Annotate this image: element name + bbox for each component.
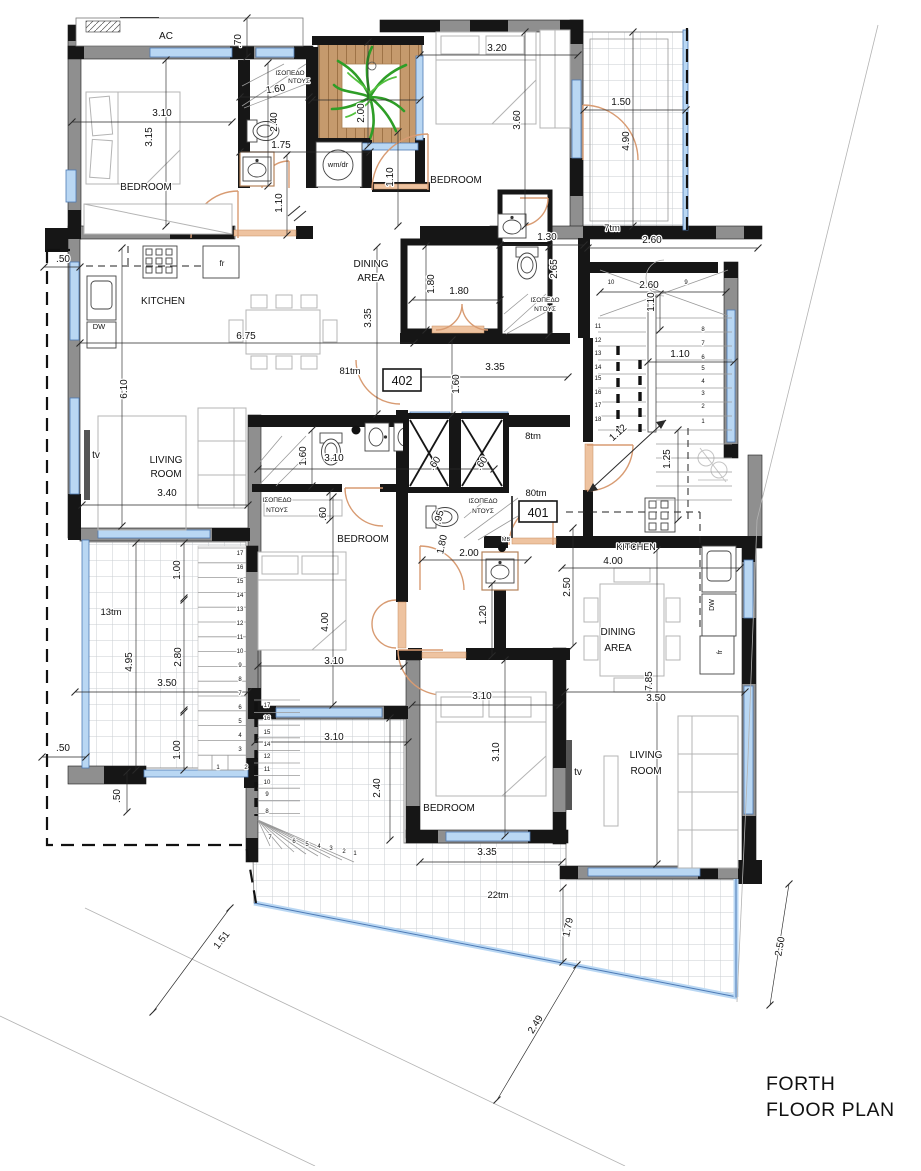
dim: 2.49 bbox=[526, 1013, 546, 1036]
room-label-living-401-2: ROOM bbox=[630, 766, 661, 777]
stair-step-num: 12 bbox=[264, 754, 271, 760]
tv-402-unit bbox=[84, 430, 90, 500]
unit-402-number: 402 bbox=[392, 374, 413, 388]
dim: 3.50 bbox=[646, 693, 666, 704]
dim: .60 bbox=[318, 507, 329, 521]
room-label-bedroom-nw: BEDROOM bbox=[120, 182, 172, 193]
dim: 3.10 bbox=[324, 453, 344, 464]
area-label-7tm: 7tm bbox=[604, 223, 620, 234]
dim: 1.10 bbox=[646, 292, 657, 312]
unit-401-number: 401 bbox=[528, 506, 549, 520]
dim: 1.20 bbox=[478, 605, 489, 625]
dim: 3.40 bbox=[157, 488, 177, 499]
page-title-line1: FORTH bbox=[766, 1073, 835, 1095]
stair-step-num: 14 bbox=[264, 742, 271, 748]
sink bbox=[365, 423, 389, 451]
shower-label-nw-1: ΙΣΟΠΕΔΟ bbox=[275, 70, 304, 77]
dim: 1.10 bbox=[274, 193, 285, 213]
stair-step-num: 9 bbox=[684, 280, 688, 286]
stair-step-num: 3 bbox=[701, 391, 705, 397]
dim: 7.85 bbox=[644, 671, 655, 691]
dim: 1.50 bbox=[611, 97, 631, 108]
shower-label-nw-2: ΝΤΟΥΣ bbox=[288, 78, 310, 85]
dim: 1.30 bbox=[537, 232, 557, 243]
dim: 3.60 bbox=[512, 110, 523, 130]
dim: 3.10 bbox=[324, 732, 344, 743]
area-label-22tm: 22tm bbox=[487, 890, 508, 901]
wardrobe-nw bbox=[84, 204, 232, 234]
area-label-80tm: 80tm bbox=[525, 488, 546, 499]
room-label-living-401-1: LIVING bbox=[630, 750, 663, 761]
stair-step-num: 17 bbox=[595, 403, 602, 409]
sink bbox=[486, 559, 514, 583]
room-label-dining-402-2: AREA bbox=[357, 273, 385, 284]
dim: 2.65 bbox=[549, 259, 560, 279]
dim: 1.00 bbox=[172, 740, 183, 760]
stair-step-num: 11 bbox=[264, 767, 271, 773]
stove-402 bbox=[143, 246, 177, 278]
dim: 1.80 bbox=[426, 274, 437, 294]
shower-label-401-1: ΙΣΟΠΕΔΟ bbox=[468, 498, 497, 505]
title-block: FORTH FLOOR PLAN bbox=[766, 1073, 895, 1121]
dim: 3.10 bbox=[491, 742, 502, 762]
plant-deck bbox=[318, 38, 422, 148]
balcony-northeast bbox=[583, 32, 685, 228]
fixture-label-tv-401: tv bbox=[574, 767, 582, 778]
dim: 2.40 bbox=[372, 778, 383, 798]
fixture-label-dw-401: DW bbox=[709, 599, 716, 611]
room-label-dining-401-1: DINING bbox=[601, 627, 636, 638]
dim: 1.51 bbox=[212, 929, 233, 951]
dim: 1.25 bbox=[662, 449, 673, 469]
dim: 2.80 bbox=[173, 647, 184, 667]
stair-step-num: 14 bbox=[237, 593, 244, 599]
dim: 6.10 bbox=[119, 379, 130, 399]
stair-step-num: 5 bbox=[701, 366, 705, 372]
dim: 1.12 bbox=[607, 422, 629, 443]
dim: .70 bbox=[233, 34, 244, 48]
stair-step-num: 15 bbox=[595, 376, 602, 382]
dim: 1.80 bbox=[435, 533, 450, 555]
floor-plan-drawing: BEDROOMBEDROOMDININGAREAKITCHENLIVINGROO… bbox=[0, 0, 921, 1166]
dim: 6.75 bbox=[236, 331, 256, 342]
shower-label-mid-1: ΙΣΟΠΕΔΟ bbox=[262, 497, 291, 504]
shower-label-wc-1: ΙΣΟΠΕΔΟ bbox=[530, 297, 559, 304]
sofa-401 bbox=[678, 716, 738, 868]
fixture-label-mb: MB bbox=[502, 537, 511, 543]
stair-step-num: 16 bbox=[595, 390, 602, 396]
stair-step-num: 4 bbox=[701, 379, 705, 385]
stair-step-num: 14 bbox=[595, 365, 602, 371]
shower-label-mid-2: ΝΤΟΥΣ bbox=[266, 507, 288, 514]
room-label-bedroom-mid: BEDROOM bbox=[337, 534, 389, 545]
area-label-13tm: 13tm bbox=[100, 607, 121, 618]
sink bbox=[243, 157, 271, 181]
stair-step-num: 10 bbox=[264, 780, 271, 786]
dim: 2.00 bbox=[356, 103, 367, 123]
stair-step-num: 12 bbox=[237, 621, 244, 627]
stair-step-num: 1 bbox=[701, 419, 705, 425]
wardrobe-ne bbox=[540, 30, 570, 128]
stair-step-num: 16 bbox=[264, 716, 271, 722]
dim: 3.35 bbox=[477, 847, 497, 858]
stair-step-num: 10 bbox=[237, 649, 244, 655]
sink bbox=[498, 214, 526, 238]
stove-401 bbox=[645, 498, 675, 532]
dim: 3.20 bbox=[487, 43, 507, 54]
stair-step-num: 18 bbox=[595, 417, 602, 423]
floor-plan-page: BEDROOMBEDROOMDININGAREAKITCHENLIVINGROO… bbox=[0, 0, 921, 1166]
stair-step-num: 13 bbox=[595, 351, 602, 357]
dim: 4.00 bbox=[320, 612, 331, 632]
stair-step-num: 16 bbox=[237, 565, 244, 571]
dim: .50 bbox=[112, 789, 123, 803]
fixture-label-fr-402: fr bbox=[220, 259, 225, 268]
dim: .50 bbox=[56, 743, 70, 754]
elevators bbox=[406, 416, 506, 490]
dim: 1.60 bbox=[451, 374, 462, 394]
dim: 2.40 bbox=[269, 112, 280, 132]
sketch-figure bbox=[698, 448, 728, 482]
dim: 3.10 bbox=[472, 691, 492, 702]
tv-401-unit bbox=[566, 740, 572, 810]
area-label-81tm: 81tm bbox=[339, 366, 360, 377]
stair-step-num: 13 bbox=[237, 607, 244, 613]
dim: 2.00 bbox=[459, 548, 479, 559]
dim: 3.50 bbox=[157, 678, 177, 689]
unit-401-tag: 401 bbox=[519, 501, 557, 522]
fixture-label-tv-402: tv bbox=[92, 450, 100, 461]
fixture-label-dw-402: DW bbox=[93, 322, 106, 331]
dishwasher-401 bbox=[702, 594, 736, 636]
dim: 4.00 bbox=[603, 556, 623, 567]
bed-ne bbox=[436, 32, 536, 124]
dim: 1.80 bbox=[449, 286, 469, 297]
room-label-living-402-1: LIVING bbox=[150, 455, 183, 466]
unit-402-tag: 402 bbox=[383, 369, 421, 391]
dim: 4.90 bbox=[621, 131, 632, 151]
dim: 3.15 bbox=[144, 127, 155, 147]
room-label-kitchen-402: KITCHEN bbox=[141, 296, 185, 307]
dim: 1.10 bbox=[670, 349, 690, 360]
dim: 1.60 bbox=[265, 83, 286, 97]
toilet bbox=[516, 247, 538, 279]
shower-label-wc-2: ΝΤΟΥΣ bbox=[534, 306, 556, 313]
dim: 1.00 bbox=[172, 560, 183, 580]
room-label-kitchen-401: KITCHEN bbox=[616, 542, 656, 552]
ac-ledge bbox=[76, 18, 303, 46]
dim: 1.75 bbox=[271, 140, 291, 151]
stair-step-num: 11 bbox=[237, 635, 244, 641]
stair-step-num: 15 bbox=[264, 730, 271, 736]
dim: 2.50 bbox=[773, 936, 787, 958]
dim: .50 bbox=[56, 254, 70, 265]
dim: 1.10 bbox=[385, 167, 396, 187]
stair-step-num: 10 bbox=[608, 280, 615, 286]
fixture-label-fr-401: fr bbox=[717, 649, 724, 654]
dim: 1.60 bbox=[298, 446, 309, 466]
shower-label-401-2: ΝΤΟΥΣ bbox=[472, 508, 494, 515]
dim: 3.10 bbox=[152, 108, 172, 119]
page-title-line2: FLOOR PLAN bbox=[766, 1099, 895, 1121]
room-label-bedroom-ne: BEDROOM bbox=[430, 175, 482, 186]
dim: 3.35 bbox=[363, 308, 374, 328]
dim: 2.50 bbox=[562, 577, 573, 597]
coffee-table-401 bbox=[604, 756, 618, 826]
stair-step-num: 17 bbox=[237, 551, 244, 557]
stair-step-num: 2 bbox=[701, 404, 705, 410]
room-label-living-402-2: ROOM bbox=[150, 469, 181, 480]
stair-step-num: 11 bbox=[595, 324, 602, 330]
fixture-label-wmdr: wm/dr bbox=[327, 160, 349, 169]
fixture-label-ac: AC bbox=[159, 31, 173, 42]
dim: 4.95 bbox=[124, 652, 135, 672]
dim: 3.35 bbox=[485, 362, 505, 373]
room-label-bedroom-s: BEDROOM bbox=[423, 803, 475, 814]
room-label-dining-401-2: AREA bbox=[604, 643, 632, 654]
room-label-dining-402-1: DINING bbox=[354, 259, 389, 270]
stair-step-num: 17 bbox=[264, 703, 271, 709]
stair-step-num: 12 bbox=[595, 338, 602, 344]
dim: 2.60 bbox=[642, 235, 662, 246]
stair-step-num: 15 bbox=[237, 579, 244, 585]
dim: 3.10 bbox=[324, 656, 344, 667]
area-label-8tm: 8tm bbox=[525, 431, 541, 442]
dim: 2.60 bbox=[639, 280, 659, 291]
